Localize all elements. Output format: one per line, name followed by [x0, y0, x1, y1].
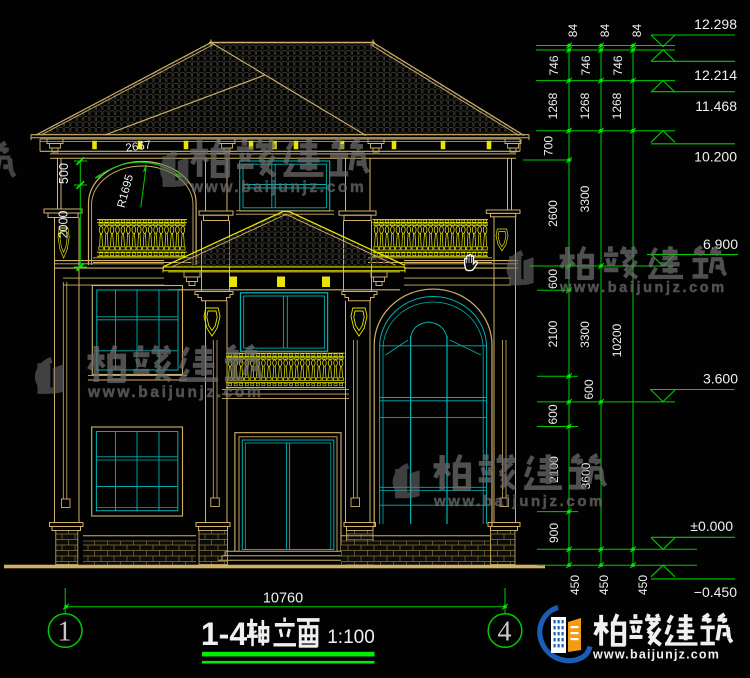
svg-text:600: 600: [582, 379, 596, 399]
svg-text:746: 746: [547, 55, 561, 75]
svg-text:3300: 3300: [578, 321, 592, 348]
svg-text:600: 600: [546, 269, 560, 289]
svg-text:11.468: 11.468: [695, 98, 737, 114]
svg-text:600: 600: [546, 404, 560, 424]
svg-text:1268: 1268: [546, 92, 560, 119]
svg-text:6.900: 6.900: [703, 236, 738, 252]
svg-text:84: 84: [630, 24, 644, 38]
svg-text:1-4: 1-4: [201, 616, 247, 652]
svg-text:2000: 2000: [57, 211, 71, 239]
svg-text:10200: 10200: [610, 323, 624, 357]
svg-text:500: 500: [57, 163, 71, 184]
svg-text:3.600: 3.600: [703, 371, 738, 387]
svg-text:10.200: 10.200: [694, 149, 737, 165]
svg-text:www.baijunjz.com: www.baijunjz.com: [559, 280, 727, 296]
svg-text:450: 450: [636, 575, 650, 595]
svg-text:900: 900: [547, 523, 561, 543]
svg-text:10760: 10760: [263, 591, 303, 607]
svg-text:450: 450: [597, 575, 611, 595]
svg-text:2100: 2100: [546, 320, 560, 347]
svg-text:www.baijunjz.com: www.baijunjz.com: [433, 493, 605, 510]
svg-text:450: 450: [568, 575, 582, 595]
svg-text:1: 1: [58, 617, 72, 648]
svg-text:84: 84: [598, 24, 612, 38]
svg-text:www.baijunjz.com: www.baijunjz.com: [87, 384, 263, 401]
svg-text:4: 4: [498, 617, 512, 648]
svg-text:±0.000: ±0.000: [690, 518, 733, 534]
svg-text:12.214: 12.214: [694, 67, 737, 83]
svg-text:1268: 1268: [578, 92, 592, 119]
svg-text:3300: 3300: [578, 185, 592, 212]
svg-text:746: 746: [611, 55, 625, 75]
svg-text:www.baijunjz.com: www.baijunjz.com: [592, 648, 720, 662]
svg-text:−0.450: −0.450: [694, 584, 737, 600]
svg-text:www.baijunjz.com: www.baijunjz.com: [190, 179, 366, 196]
svg-text:1268: 1268: [610, 92, 624, 119]
svg-text:84: 84: [566, 24, 580, 38]
svg-text:2600: 2600: [546, 200, 560, 227]
svg-text:746: 746: [579, 55, 593, 75]
svg-text:700: 700: [542, 136, 556, 156]
svg-text:1:100: 1:100: [327, 627, 375, 648]
svg-text:12.298: 12.298: [694, 16, 737, 32]
